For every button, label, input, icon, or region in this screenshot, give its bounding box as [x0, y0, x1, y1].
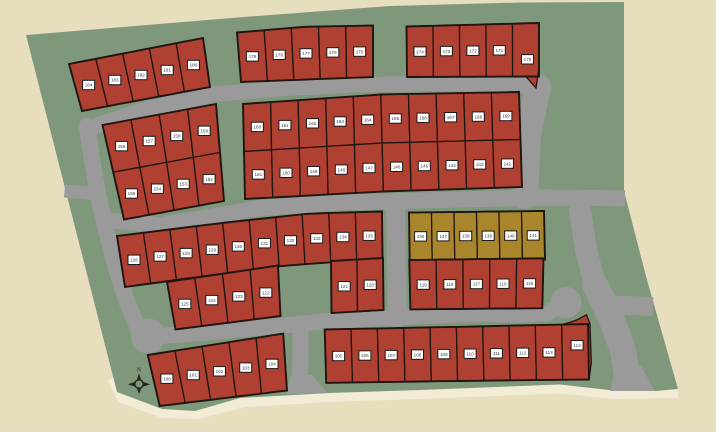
- svg-text:110: 110: [466, 351, 474, 356]
- svg-text:171: 171: [495, 48, 503, 53]
- svg-text:177: 177: [302, 51, 310, 56]
- svg-text:163: 163: [336, 119, 344, 124]
- svg-text:133: 133: [313, 236, 321, 241]
- svg-text:149: 149: [310, 169, 318, 174]
- svg-text:148: 148: [337, 167, 345, 172]
- svg-text:136: 136: [417, 234, 425, 239]
- svg-text:146: 146: [393, 165, 401, 170]
- svg-text:162: 162: [309, 121, 317, 126]
- svg-text:100: 100: [163, 376, 171, 381]
- svg-text:107: 107: [387, 353, 395, 358]
- svg-text:121: 121: [340, 284, 348, 289]
- svg-text:153: 153: [179, 182, 187, 187]
- svg-text:143: 143: [476, 162, 484, 167]
- svg-text:112: 112: [519, 351, 527, 356]
- svg-text:144: 144: [448, 163, 456, 168]
- svg-text:117: 117: [473, 282, 481, 287]
- svg-text:135: 135: [365, 233, 373, 238]
- svg-text:170: 170: [524, 57, 532, 62]
- svg-text:101: 101: [189, 373, 197, 378]
- svg-text:176: 176: [329, 50, 337, 55]
- svg-text:N: N: [137, 368, 142, 374]
- svg-text:165: 165: [391, 116, 399, 121]
- svg-text:134: 134: [339, 235, 347, 240]
- svg-text:161: 161: [281, 123, 289, 128]
- svg-text:150: 150: [282, 171, 290, 176]
- svg-text:124: 124: [208, 298, 216, 303]
- svg-text:111: 111: [493, 351, 500, 356]
- svg-text:116: 116: [499, 281, 507, 286]
- svg-text:103: 103: [242, 365, 250, 370]
- svg-text:164: 164: [364, 117, 372, 122]
- svg-text:120: 120: [366, 282, 374, 287]
- svg-text:139: 139: [484, 234, 492, 239]
- svg-text:156: 156: [118, 144, 126, 149]
- svg-text:175: 175: [356, 49, 364, 54]
- svg-text:169: 169: [502, 114, 510, 119]
- svg-text:160: 160: [253, 125, 261, 130]
- svg-text:173: 173: [443, 49, 451, 54]
- svg-text:147: 147: [365, 166, 373, 171]
- svg-text:132: 132: [287, 238, 295, 243]
- svg-text:126: 126: [130, 258, 138, 263]
- svg-text:168: 168: [474, 114, 482, 119]
- svg-text:130: 130: [234, 244, 242, 249]
- svg-text:109: 109: [440, 352, 448, 357]
- svg-text:145: 145: [420, 164, 428, 169]
- svg-text:131: 131: [261, 241, 269, 246]
- svg-text:125: 125: [181, 302, 189, 307]
- svg-text:167: 167: [447, 115, 455, 120]
- svg-text:174: 174: [416, 49, 424, 54]
- svg-text:141: 141: [529, 233, 537, 238]
- svg-text:137: 137: [439, 234, 447, 239]
- svg-text:154: 154: [154, 186, 162, 191]
- svg-text:142: 142: [504, 161, 512, 166]
- svg-text:178: 178: [275, 53, 283, 58]
- svg-text:158: 158: [173, 134, 181, 139]
- svg-text:128: 128: [182, 251, 190, 256]
- svg-text:157: 157: [145, 139, 153, 144]
- svg-text:166: 166: [419, 116, 427, 121]
- svg-text:119: 119: [420, 282, 428, 287]
- svg-text:104: 104: [268, 362, 276, 367]
- svg-text:181: 181: [163, 68, 171, 73]
- svg-text:155: 155: [128, 191, 136, 196]
- svg-text:183: 183: [111, 78, 119, 83]
- svg-text:113: 113: [545, 350, 553, 355]
- svg-text:179: 179: [249, 54, 257, 59]
- svg-text:152: 152: [205, 177, 213, 182]
- svg-text:105: 105: [335, 354, 343, 359]
- svg-text:123: 123: [235, 294, 243, 299]
- svg-text:159: 159: [200, 129, 208, 134]
- svg-text:184: 184: [85, 83, 93, 88]
- svg-text:182: 182: [137, 73, 145, 78]
- svg-text:138: 138: [462, 234, 470, 239]
- svg-text:108: 108: [414, 352, 422, 357]
- svg-text:172: 172: [469, 49, 477, 54]
- svg-text:129: 129: [208, 247, 216, 252]
- svg-text:118: 118: [446, 282, 454, 287]
- svg-text:122: 122: [262, 290, 270, 295]
- svg-text:102: 102: [216, 369, 224, 374]
- svg-text:106: 106: [361, 353, 369, 358]
- svg-text:140: 140: [507, 233, 515, 238]
- svg-text:115: 115: [526, 281, 534, 286]
- svg-text:151: 151: [254, 172, 262, 177]
- svg-text:127: 127: [156, 254, 164, 259]
- svg-text:180: 180: [190, 63, 198, 68]
- svg-text:114: 114: [573, 343, 581, 348]
